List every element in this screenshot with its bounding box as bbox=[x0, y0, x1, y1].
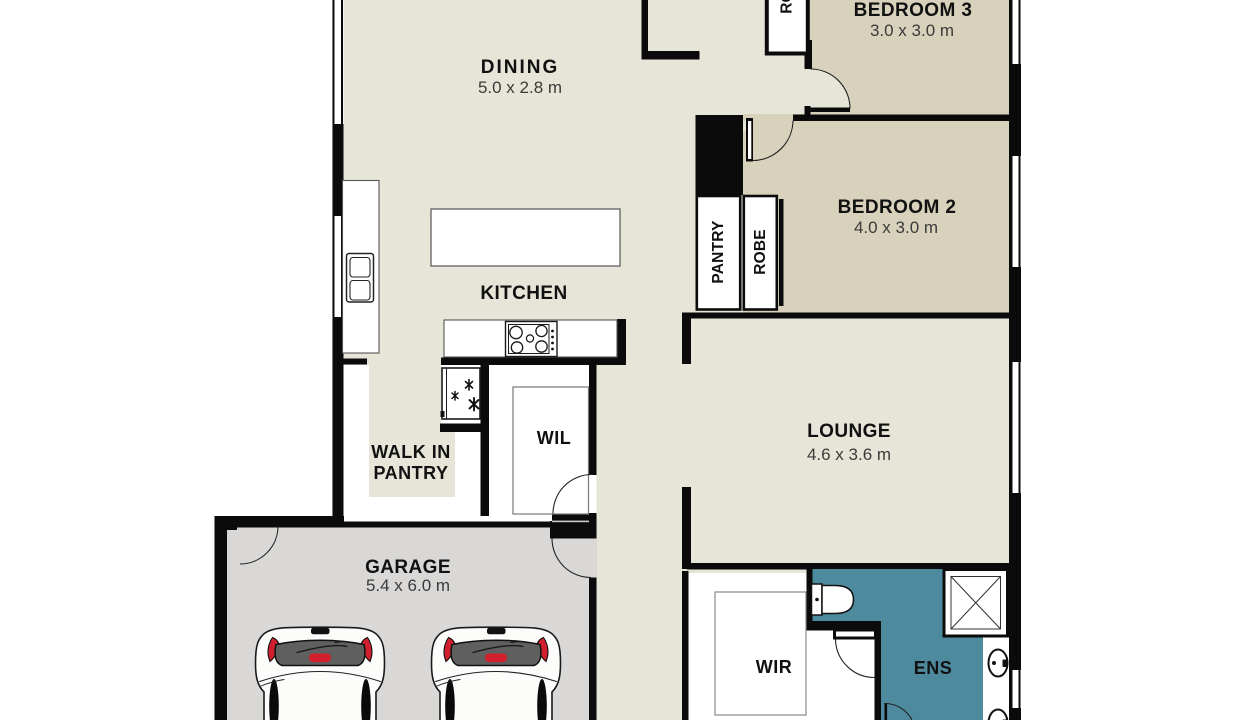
svg-text:ROBE: ROBE bbox=[752, 229, 769, 275]
svg-text:LOUNGE: LOUNGE bbox=[807, 421, 891, 442]
svg-text:4.6 x 3.6 m: 4.6 x 3.6 m bbox=[807, 445, 891, 464]
svg-text:GARAGE: GARAGE bbox=[365, 557, 451, 578]
svg-text:5.4 x 6.0 m: 5.4 x 6.0 m bbox=[366, 576, 450, 595]
svg-text:4.0 x 3.0 m: 4.0 x 3.0 m bbox=[854, 218, 938, 237]
svg-text:WALK IN: WALK IN bbox=[371, 442, 451, 462]
svg-text:PANTRY: PANTRY bbox=[710, 220, 727, 284]
svg-text:WIL: WIL bbox=[537, 428, 572, 448]
svg-text:BEDROOM 2: BEDROOM 2 bbox=[838, 197, 957, 218]
svg-text:5.0 x 2.8 m: 5.0 x 2.8 m bbox=[478, 78, 562, 97]
svg-text:3.0 x 3.0 m: 3.0 x 3.0 m bbox=[870, 21, 954, 40]
svg-text:PANTRY: PANTRY bbox=[374, 463, 449, 483]
svg-text:WIR: WIR bbox=[756, 657, 793, 677]
svg-text:ROBE: ROBE bbox=[779, 0, 796, 14]
svg-text:BEDROOM 3: BEDROOM 3 bbox=[854, 0, 973, 21]
svg-text:KITCHEN: KITCHEN bbox=[480, 283, 567, 304]
svg-text:DINING: DINING bbox=[481, 57, 560, 78]
svg-text:ENS: ENS bbox=[914, 658, 953, 678]
